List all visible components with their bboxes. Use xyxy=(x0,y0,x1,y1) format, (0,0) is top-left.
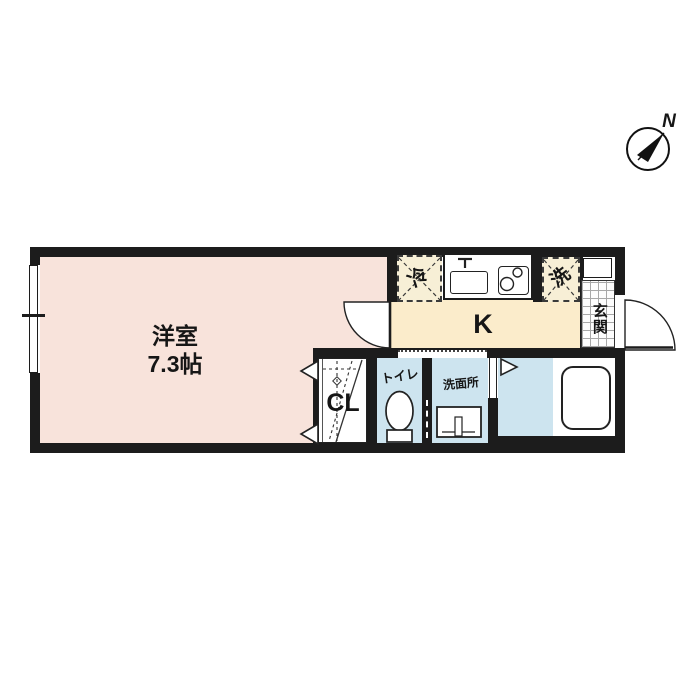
bathtub xyxy=(561,366,611,430)
compass-north-label: N xyxy=(662,112,676,132)
closet-label: CL xyxy=(326,390,359,416)
entrance-door-swing xyxy=(625,300,675,350)
wall-kitchen-divider xyxy=(387,255,397,302)
wall-left-lower xyxy=(30,373,40,453)
entrance-shoe-cabinet xyxy=(583,258,612,278)
window-mullion-tick xyxy=(22,314,45,317)
kitchen-sink xyxy=(450,271,488,294)
room-western-upper-band xyxy=(313,257,390,348)
floor-plan: 洋室 7.3帖 K 冷 洗 玄関 トイレ 洗面所 CL N xyxy=(0,0,700,700)
entrance-label: 玄関 xyxy=(591,303,607,335)
wall-washroom-bath xyxy=(488,398,498,443)
room-washroom-floor xyxy=(432,358,488,443)
wall-left-upper xyxy=(30,247,40,265)
western-room-area: 7.3帖 xyxy=(148,352,203,376)
closet-door-track xyxy=(322,359,323,442)
washroom-label: 洗面所 xyxy=(443,376,480,392)
wall-toilet-left xyxy=(367,348,377,443)
compass-icon xyxy=(627,128,669,170)
wall-right-lower xyxy=(615,348,625,453)
wall-bath-bottom xyxy=(494,436,625,453)
wall-counter-washer-stub xyxy=(533,255,542,302)
stove xyxy=(498,266,529,295)
toilet-washroom-sliding-door xyxy=(398,350,487,358)
toilet-divider-door-dash xyxy=(426,400,428,438)
kitchen-label: K xyxy=(473,310,493,338)
window xyxy=(29,265,38,373)
bath-door xyxy=(489,358,497,398)
wall-right-upper xyxy=(615,247,625,295)
western-room-name: 洋室 xyxy=(152,324,198,348)
